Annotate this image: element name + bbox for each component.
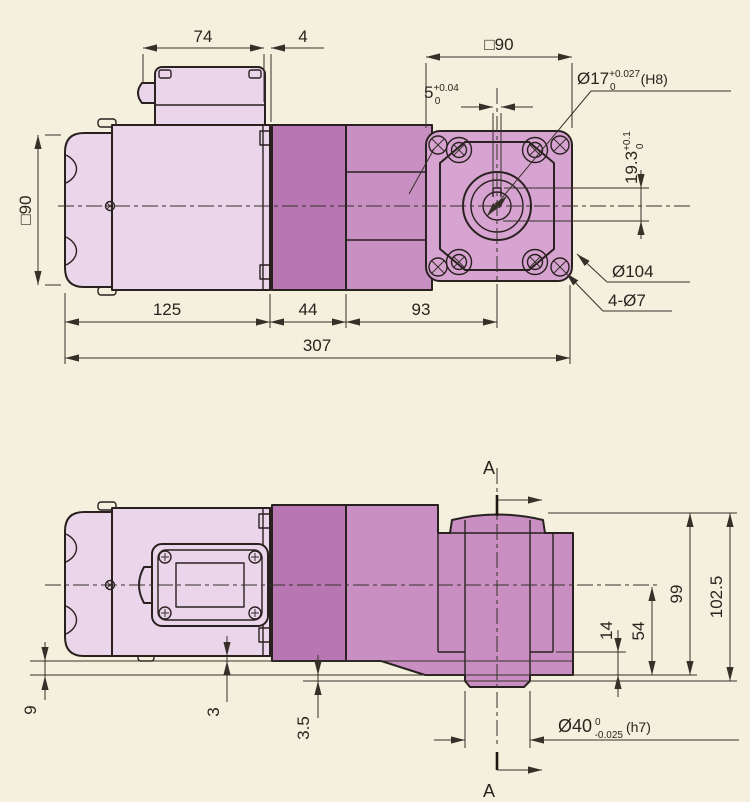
drawing-background — [0, 0, 750, 802]
dim-99-label: 99 — [667, 585, 686, 604]
dim-54-label: 54 — [629, 622, 648, 641]
gearmotor-dimension-drawing: 74 4 □90 5+0.040 Ø17+0.0270(H8) — [0, 0, 750, 802]
dim-square90-left-label: □90 — [16, 195, 35, 224]
dim-125-label: 125 — [153, 300, 181, 319]
dim-307-label: 307 — [303, 336, 331, 355]
terminal-box-plan — [138, 67, 265, 130]
section-label-a-bottom: A — [483, 781, 495, 801]
section-label-a-top: A — [483, 458, 495, 478]
gearbox-side — [272, 505, 573, 687]
dim-4-label: 4 — [298, 27, 307, 46]
callout-pilot-diameter-label: Ø104 — [612, 262, 654, 281]
callout-bolt-holes-label: 4-Ø7 — [608, 291, 646, 310]
motor-body-side — [65, 502, 272, 661]
motor-body-plan — [65, 119, 272, 295]
fan-cover-plan — [65, 133, 112, 287]
dim-9-label: 9 — [21, 705, 40, 714]
dim-93-label: 93 — [412, 300, 431, 319]
dim-3-5-label: 3.5 — [294, 716, 313, 740]
gearbox-plan — [272, 125, 432, 290]
dim-square90-top-label: □90 — [484, 35, 513, 54]
dim-3-label: 3 — [204, 707, 223, 716]
dim-74-label: 74 — [194, 27, 213, 46]
dim-44-label: 44 — [299, 300, 318, 319]
dim-102-5-label: 102.5 — [707, 576, 726, 619]
dim-14-label: 14 — [597, 621, 616, 640]
